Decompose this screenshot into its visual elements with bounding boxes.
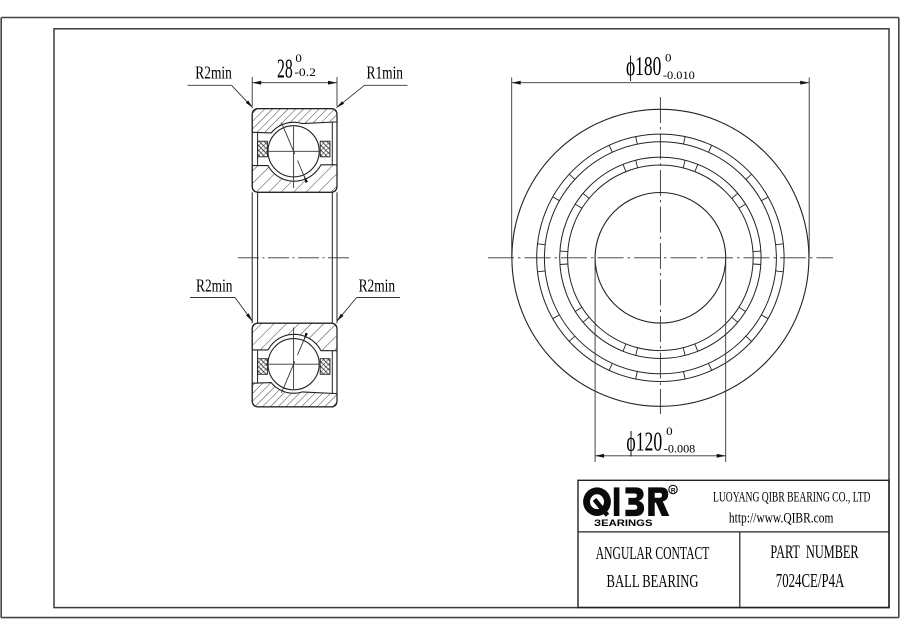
svg-text:7024CE/P4A: 7024CE/P4A	[776, 570, 845, 592]
svg-text:ϕ120: ϕ120	[626, 426, 662, 456]
svg-text:BALL BEARING: BALL BEARING	[607, 571, 699, 591]
svg-text:ϕ180: ϕ180	[626, 51, 661, 81]
svg-text:0: 0	[665, 53, 672, 65]
svg-text:R1min: R1min	[367, 62, 404, 82]
svg-text:LUOYANG QIBR BEARING CO., LTD: LUOYANG QIBR BEARING CO., LTD	[713, 490, 871, 506]
svg-text:-0.010: -0.010	[663, 70, 695, 82]
svg-text:R2min: R2min	[359, 276, 396, 296]
svg-text:R2min: R2min	[196, 276, 233, 296]
svg-text:ЗEARINGS: ЗEARINGS	[594, 518, 653, 529]
svg-text:R2min: R2min	[195, 62, 232, 82]
svg-text:http://www.QIBR.com: http://www.QIBR.com	[729, 511, 834, 527]
svg-text:0: 0	[666, 426, 673, 438]
svg-text:0: 0	[295, 53, 302, 65]
svg-text:-0.2: -0.2	[294, 67, 316, 79]
svg-text:28: 28	[277, 54, 293, 84]
svg-text:PART NUMBER: PART NUMBER	[770, 543, 859, 563]
svg-text:-0.008: -0.008	[664, 444, 696, 456]
svg-text:R: R	[671, 487, 676, 494]
svg-text:ANGULAR CONTACT: ANGULAR CONTACT	[596, 543, 710, 563]
